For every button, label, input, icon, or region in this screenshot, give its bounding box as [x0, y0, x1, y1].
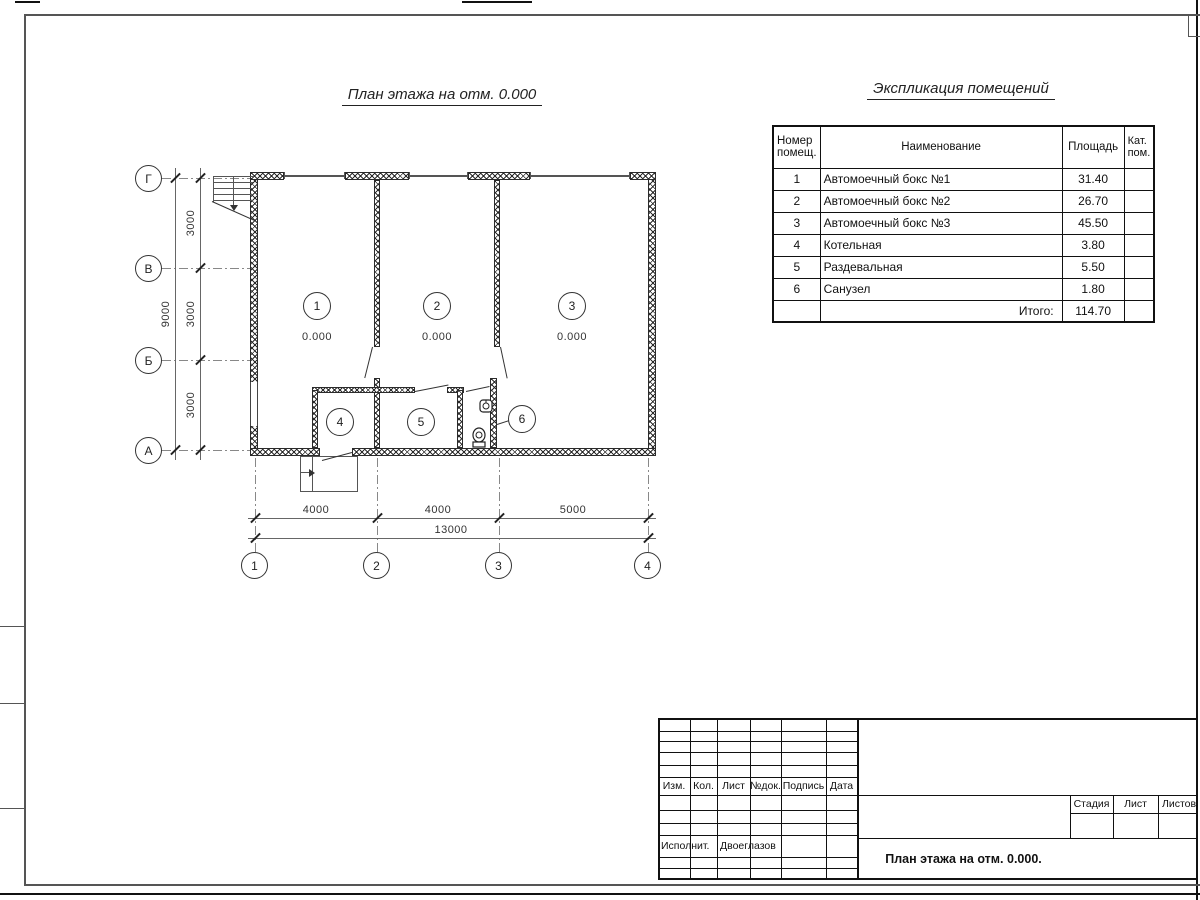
wall-room4-left	[312, 390, 318, 448]
wall-top-segment	[345, 172, 409, 180]
axis-bubble-b: Б	[135, 347, 162, 374]
window-left-wall	[250, 382, 258, 426]
col-name-header: Наименование	[820, 126, 1062, 168]
schedule-row: 6 Санузел 1.80	[773, 278, 1154, 300]
wall-right	[648, 172, 656, 456]
frame-corner-box	[1188, 14, 1200, 37]
dim-text-3000: 3000	[185, 294, 197, 334]
tb-vline	[781, 718, 782, 880]
room-area: 5.50	[1062, 256, 1124, 278]
tb-hline	[658, 741, 857, 742]
dimension-line	[248, 538, 656, 539]
wall-interior-2-upper	[494, 180, 500, 347]
room-num: 3	[773, 212, 820, 234]
axis-bubble-1: 1	[241, 552, 268, 579]
door-swing	[466, 386, 490, 392]
schedule-row: 1 Автомоечный бокс №1 31.40	[773, 168, 1154, 190]
tb-hline	[658, 823, 857, 824]
elevation-mark: 0.000	[412, 331, 462, 343]
wall-top-segment	[250, 172, 284, 180]
tb-hline	[658, 731, 857, 732]
dim-text-3000: 3000	[185, 203, 197, 243]
room-tag-5: 5	[407, 408, 435, 436]
window-tick	[467, 172, 468, 179]
window-tick	[530, 172, 531, 179]
wall-interior-1-upper	[374, 180, 380, 347]
room-name: Раздевальная	[820, 256, 1062, 278]
wall-top-segment	[630, 172, 656, 180]
tb-col-data: Дата	[826, 780, 857, 792]
dim-text-4000: 4000	[408, 504, 468, 516]
wall-rooms45-top	[312, 387, 415, 393]
tb-hline-right	[857, 795, 1198, 796]
schedule-row: 2 Автомоечный бокс №2 26.70	[773, 190, 1154, 212]
tb-executor-label: Исполнит.	[661, 840, 717, 852]
room-name: Автомоечный бокс №3	[820, 212, 1062, 234]
room-cat	[1124, 234, 1154, 256]
dim-text-9000: 9000	[160, 294, 172, 334]
margin-divider	[0, 703, 24, 704]
tb-hline-right	[857, 838, 1198, 839]
col-cat-header: Кат. пом.	[1124, 126, 1154, 168]
axis-bubble-g: Г	[135, 165, 162, 192]
tb-stage-label: Стадия	[1070, 798, 1113, 810]
scan-edge-mark	[462, 1, 532, 3]
room-number: 5	[418, 415, 425, 429]
tb-hline	[658, 795, 857, 796]
wall-bottom-segment	[250, 448, 320, 456]
frame-left	[24, 14, 26, 885]
room-num: 5	[773, 256, 820, 278]
col-number-header: Номер помещ.	[773, 126, 820, 168]
window-tick	[344, 172, 345, 179]
room-number: 4	[337, 415, 344, 429]
room-num: 2	[773, 190, 820, 212]
drawing-sheet: План этажа на отм. 0.000 Г В Б А 3000 30…	[0, 0, 1200, 900]
frame-bottom	[24, 884, 1200, 886]
room-cat	[1124, 212, 1154, 234]
room-cat	[1124, 168, 1154, 190]
toilet-icon	[468, 427, 490, 449]
room-area: 45.50	[1062, 212, 1124, 234]
window-line	[284, 175, 345, 177]
room-num: 1	[773, 168, 820, 190]
axis-bubble-2: 2	[363, 552, 390, 579]
schedule-row: 5 Раздевальная 5.50	[773, 256, 1154, 278]
door-swing	[500, 347, 508, 379]
door-swing	[415, 385, 449, 392]
axis-bubble-a: А	[135, 437, 162, 464]
tb-hline	[658, 777, 857, 778]
axis-label: В	[144, 262, 152, 276]
margin-divider	[0, 626, 24, 627]
tb-hline	[658, 835, 857, 836]
room-tag-3: 3	[558, 292, 586, 320]
tb-col-list: Лист	[717, 780, 750, 792]
window-tick	[284, 172, 285, 179]
room-area: 31.40	[1062, 168, 1124, 190]
window-line	[530, 175, 630, 177]
tb-sheet-label: Лист	[1113, 798, 1158, 810]
sink-icon	[478, 399, 494, 415]
tb-col-kol: Кол.	[690, 780, 717, 792]
stair-direction-line	[233, 176, 234, 206]
total-label: Итого:	[820, 300, 1062, 322]
room-name: Автомоечный бокс №2	[820, 190, 1062, 212]
dimension-line	[248, 518, 656, 519]
room-name: Автомоечный бокс №1	[820, 168, 1062, 190]
margin-divider	[0, 808, 24, 809]
wall-bottom-segment	[352, 448, 656, 456]
dim-text-4000: 4000	[286, 504, 346, 516]
room-schedule-table: Номер помещ. Наименование Площадь Кат. п…	[772, 125, 1155, 323]
room-number: 6	[519, 412, 526, 426]
elevation-mark: 0.000	[547, 331, 597, 343]
door-swing	[364, 347, 373, 378]
tb-hline-stage	[1070, 813, 1198, 814]
wall-top-segment	[468, 172, 530, 180]
plan-title-text: План этажа на отм. 0.000	[342, 86, 543, 106]
room-number: 2	[434, 299, 441, 313]
dim-text-3000: 3000	[185, 385, 197, 425]
elevation-mark: 0.000	[292, 331, 342, 343]
dim-text-5000: 5000	[543, 504, 603, 516]
frame-top	[24, 14, 1200, 16]
tb-vline	[690, 718, 691, 880]
total-area: 114.70	[1062, 300, 1124, 322]
window-tick	[409, 172, 410, 179]
room-tag-4: 4	[326, 408, 354, 436]
tb-hline	[658, 765, 857, 766]
room-area: 26.70	[1062, 190, 1124, 212]
schedule-title: Экспликация помещений	[811, 80, 1111, 97]
dimension-line	[175, 168, 176, 460]
axis-label: Б	[145, 354, 153, 368]
room-area: 1.80	[1062, 278, 1124, 300]
stair-side	[213, 176, 214, 202]
schedule-title-text: Экспликация помещений	[867, 80, 1055, 100]
dim-text-13000: 13000	[421, 524, 481, 536]
total-empty	[773, 300, 820, 322]
tb-hline	[658, 810, 857, 811]
tb-vline	[826, 718, 827, 880]
room-name: Санузел	[820, 278, 1062, 300]
axis-label: 3	[495, 559, 502, 573]
axis-label: Г	[145, 172, 152, 186]
schedule-row: 3 Автомоечный бокс №3 45.50	[773, 212, 1154, 234]
scan-edge-mark	[15, 1, 40, 3]
schedule-total-row: Итого: 114.70	[773, 300, 1154, 322]
room-cat	[1124, 278, 1154, 300]
room-cat	[1124, 190, 1154, 212]
room-number: 3	[569, 299, 576, 313]
entrance-arrow	[309, 469, 315, 477]
axis-label: 4	[644, 559, 651, 573]
axis-bubble-v: В	[135, 255, 162, 282]
tb-executor-name: Двоеглазов	[720, 840, 780, 852]
total-cat	[1124, 300, 1154, 322]
plan-title: План этажа на отм. 0.000	[337, 86, 547, 103]
sheet-bottom-edge	[0, 893, 1200, 895]
tb-vline	[750, 718, 751, 880]
tb-hline	[658, 857, 857, 858]
room-tag-6: 6	[508, 405, 536, 433]
room-num: 6	[773, 278, 820, 300]
tb-col-ndok: №док.	[750, 780, 781, 792]
tb-vline	[717, 718, 718, 880]
dimension-line	[200, 168, 201, 460]
room-area: 3.80	[1062, 234, 1124, 256]
axis-bubble-4: 4	[634, 552, 661, 579]
schedule-header-row: Номер помещ. Наименование Площадь Кат. п…	[773, 126, 1154, 168]
room-number: 1	[314, 299, 321, 313]
tb-doc-title: План этажа на отм. 0.000.	[857, 852, 1070, 866]
room-cat	[1124, 256, 1154, 278]
axis-bubble-3: 3	[485, 552, 512, 579]
wall-room6-left	[457, 390, 463, 448]
tb-hline	[658, 868, 857, 869]
axis-label: А	[144, 444, 152, 458]
schedule-row: 4 Котельная 3.80	[773, 234, 1154, 256]
room-name: Котельная	[820, 234, 1062, 256]
col-area-header: Площадь	[1062, 126, 1124, 168]
room-num: 4	[773, 234, 820, 256]
axis-label: 1	[251, 559, 258, 573]
tb-col-podpis: Подпись	[781, 780, 826, 792]
tb-hline	[658, 752, 857, 753]
axis-label: 2	[373, 559, 380, 573]
tb-sheets-label: Листов	[1158, 798, 1200, 810]
room-tag-2: 2	[423, 292, 451, 320]
tb-col-izm: Изм.	[658, 780, 690, 792]
room-tag-1: 1	[303, 292, 331, 320]
window-tick	[629, 172, 630, 179]
window-line	[409, 175, 468, 177]
